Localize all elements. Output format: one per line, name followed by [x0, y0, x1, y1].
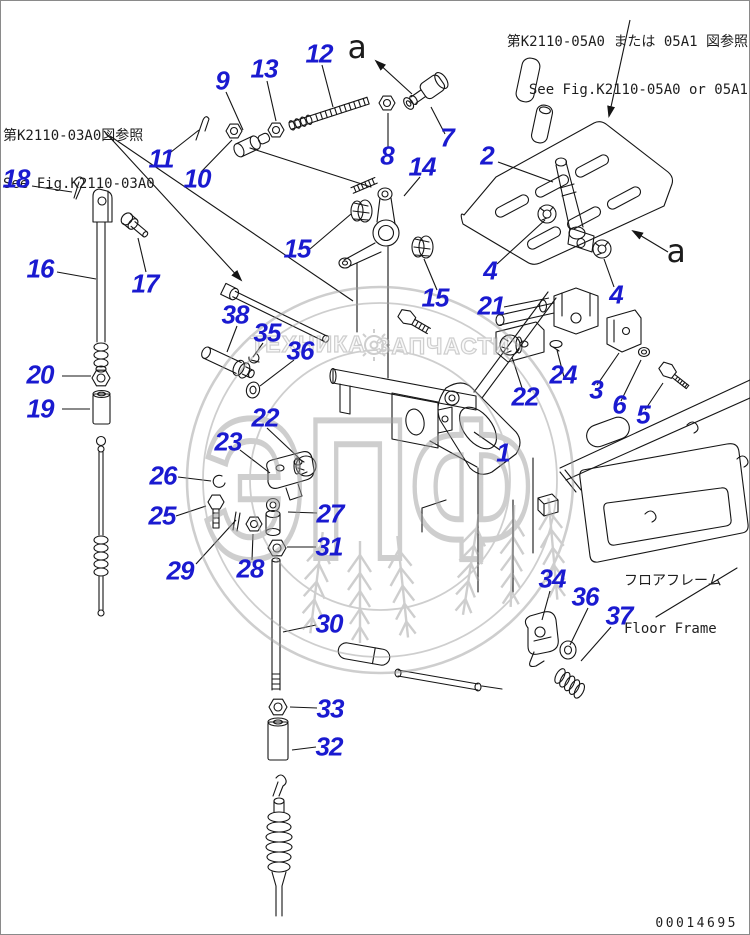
leader-line — [498, 162, 553, 182]
callout-37: 37 — [606, 601, 633, 632]
floor-frame-label: フロアフレーム Floor Frame — [624, 541, 722, 669]
callout-22: 22 — [252, 403, 279, 434]
callout-28: 28 — [237, 554, 264, 585]
clip-24 — [550, 341, 562, 352]
callout-9: 9 — [215, 66, 228, 97]
fig-reference-left: 第K2110-03A0図参照 See Fig.K2110-03A0 — [3, 96, 155, 224]
leader-arrow — [633, 231, 668, 252]
boot-cable — [266, 775, 292, 916]
callout-29: 29 — [167, 556, 194, 587]
callout-36: 36 — [287, 336, 314, 367]
callout-7: 7 — [440, 123, 453, 154]
link-rod-bottom — [395, 669, 502, 691]
bracket-3 — [607, 310, 641, 352]
nut-13 — [268, 123, 284, 137]
leader-line — [310, 214, 351, 249]
joint-9 — [232, 130, 272, 159]
callout-12: 12 — [306, 39, 333, 70]
callout-25: 25 — [149, 501, 176, 532]
cable-left — [94, 437, 108, 617]
callout-6: 6 — [612, 390, 625, 421]
callout-34: 34 — [539, 564, 566, 595]
bolt-5 — [657, 360, 692, 392]
leader-line — [171, 130, 199, 152]
floor-frame-en: Floor Frame — [624, 621, 722, 637]
bushing-15-left — [351, 200, 372, 222]
callout-30: 30 — [316, 609, 343, 640]
view-label-a: a — [347, 28, 366, 66]
fig-ref-en: See Fig.K2110-05A0 or 05A1 — [507, 82, 748, 98]
view-label-a: a — [666, 232, 685, 270]
callout-36: 36 — [572, 582, 599, 613]
callout-27: 27 — [317, 499, 344, 530]
callout-24: 24 — [550, 360, 577, 391]
spacer-32 — [268, 718, 288, 760]
callout-13: 13 — [251, 54, 278, 85]
nut-8 — [379, 96, 395, 110]
leader-arrow — [376, 61, 412, 94]
leader-line — [322, 65, 333, 107]
callout-20: 20 — [27, 360, 54, 391]
callout-31: 31 — [316, 532, 343, 563]
callout-21: 21 — [478, 291, 505, 322]
callout-2: 2 — [480, 141, 493, 172]
callout-4: 4 — [609, 280, 622, 311]
floor-frame-jp: フロアフレーム — [624, 573, 722, 589]
callout-14: 14 — [409, 152, 436, 183]
leader-line — [581, 627, 611, 661]
callout-16: 16 — [27, 254, 54, 285]
callout-4: 4 — [483, 256, 496, 287]
threaded-rod-12 — [288, 96, 370, 131]
nut-4-left — [538, 205, 556, 223]
document-number: 00014695 — [655, 916, 738, 932]
leader-line — [57, 272, 96, 279]
callout-35: 35 — [254, 318, 281, 349]
pedal-lever-2 — [556, 158, 595, 252]
nut-10 — [226, 124, 242, 138]
leader-line — [267, 81, 276, 121]
fig-ref-jp: 第K2110-03A0図参照 — [3, 128, 155, 144]
callout-15: 15 — [422, 283, 449, 314]
cotter-pin-11 — [196, 117, 209, 140]
nut-33 — [269, 699, 287, 715]
watermark-logo: ЭПФ ТЕХНИКА ЗАПЧАСТИ — [187, 287, 573, 673]
fig-reference-top-right: 第K2110-05A0 または 05A1 図参照 See Fig.K2110-0… — [507, 2, 748, 130]
callout-3: 3 — [589, 375, 602, 406]
fitting-7 — [400, 70, 450, 113]
callout-32: 32 — [316, 732, 343, 763]
leader-line — [292, 747, 316, 750]
callout-8: 8 — [380, 141, 393, 172]
spring-37 — [551, 667, 589, 700]
callout-26: 26 — [150, 461, 177, 492]
callout-10: 10 — [184, 164, 211, 195]
callout-1: 1 — [496, 438, 509, 469]
callout-22: 22 — [512, 382, 539, 413]
callout-23: 23 — [215, 427, 242, 458]
callout-11: 11 — [149, 144, 174, 175]
bellcrank-14 — [339, 178, 399, 268]
nut-4-right — [593, 240, 611, 258]
leader-line — [290, 707, 317, 708]
callout-19: 19 — [27, 394, 54, 425]
leader-line — [497, 220, 545, 264]
svg-text:ЗАПЧАСТИ: ЗАПЧАСТИ — [376, 333, 510, 359]
washer-6 — [639, 348, 650, 357]
callout-15: 15 — [284, 234, 311, 265]
leader-line — [570, 608, 588, 645]
callout-17: 17 — [132, 269, 159, 300]
callout-33: 33 — [317, 694, 344, 725]
callout-18: 18 — [3, 164, 30, 195]
spacer-19 — [93, 391, 110, 425]
bushing-15-right — [412, 236, 433, 258]
leader-line — [138, 238, 146, 272]
parts-diagram-page: ЭПФ ТЕХНИКА ЗАПЧАСТИ 第K2110-05A0 または 05A… — [0, 0, 750, 935]
callout-38: 38 — [222, 300, 249, 331]
washer-36-lower — [560, 641, 576, 659]
callout-5: 5 — [636, 400, 649, 431]
fig-ref-jp: 第K2110-05A0 または 05A1 図参照 — [507, 34, 748, 50]
